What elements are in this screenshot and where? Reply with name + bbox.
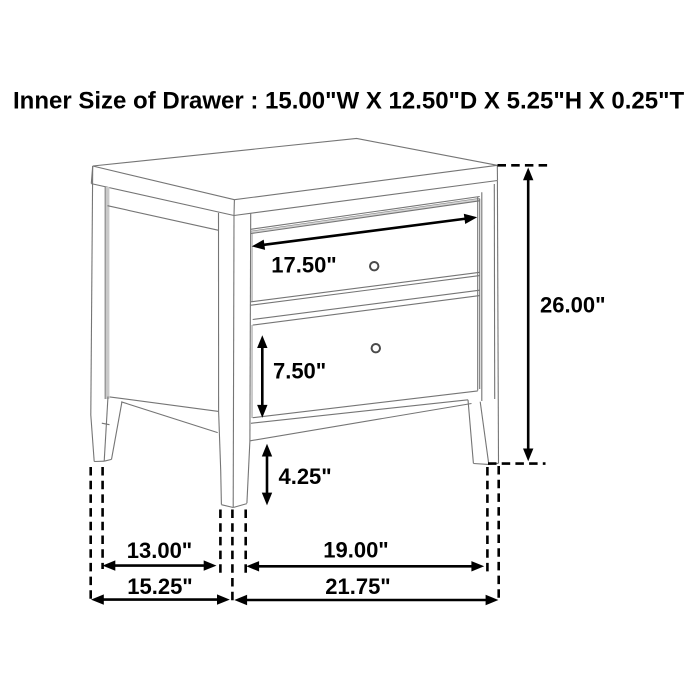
svg-text:17.50": 17.50" xyxy=(271,253,336,278)
svg-text:21.75": 21.75" xyxy=(325,574,390,599)
svg-text:4.25": 4.25" xyxy=(278,464,331,489)
svg-text:Inner Size of Drawer : 15.00"W: Inner Size of Drawer : 15.00"W X 12.50"D… xyxy=(13,88,684,115)
svg-text:13.00": 13.00" xyxy=(127,538,192,563)
svg-text:26.00": 26.00" xyxy=(540,293,605,318)
svg-text:15.25": 15.25" xyxy=(127,574,192,599)
svg-text:19.00": 19.00" xyxy=(323,538,388,563)
svg-text:7.50": 7.50" xyxy=(273,359,326,384)
